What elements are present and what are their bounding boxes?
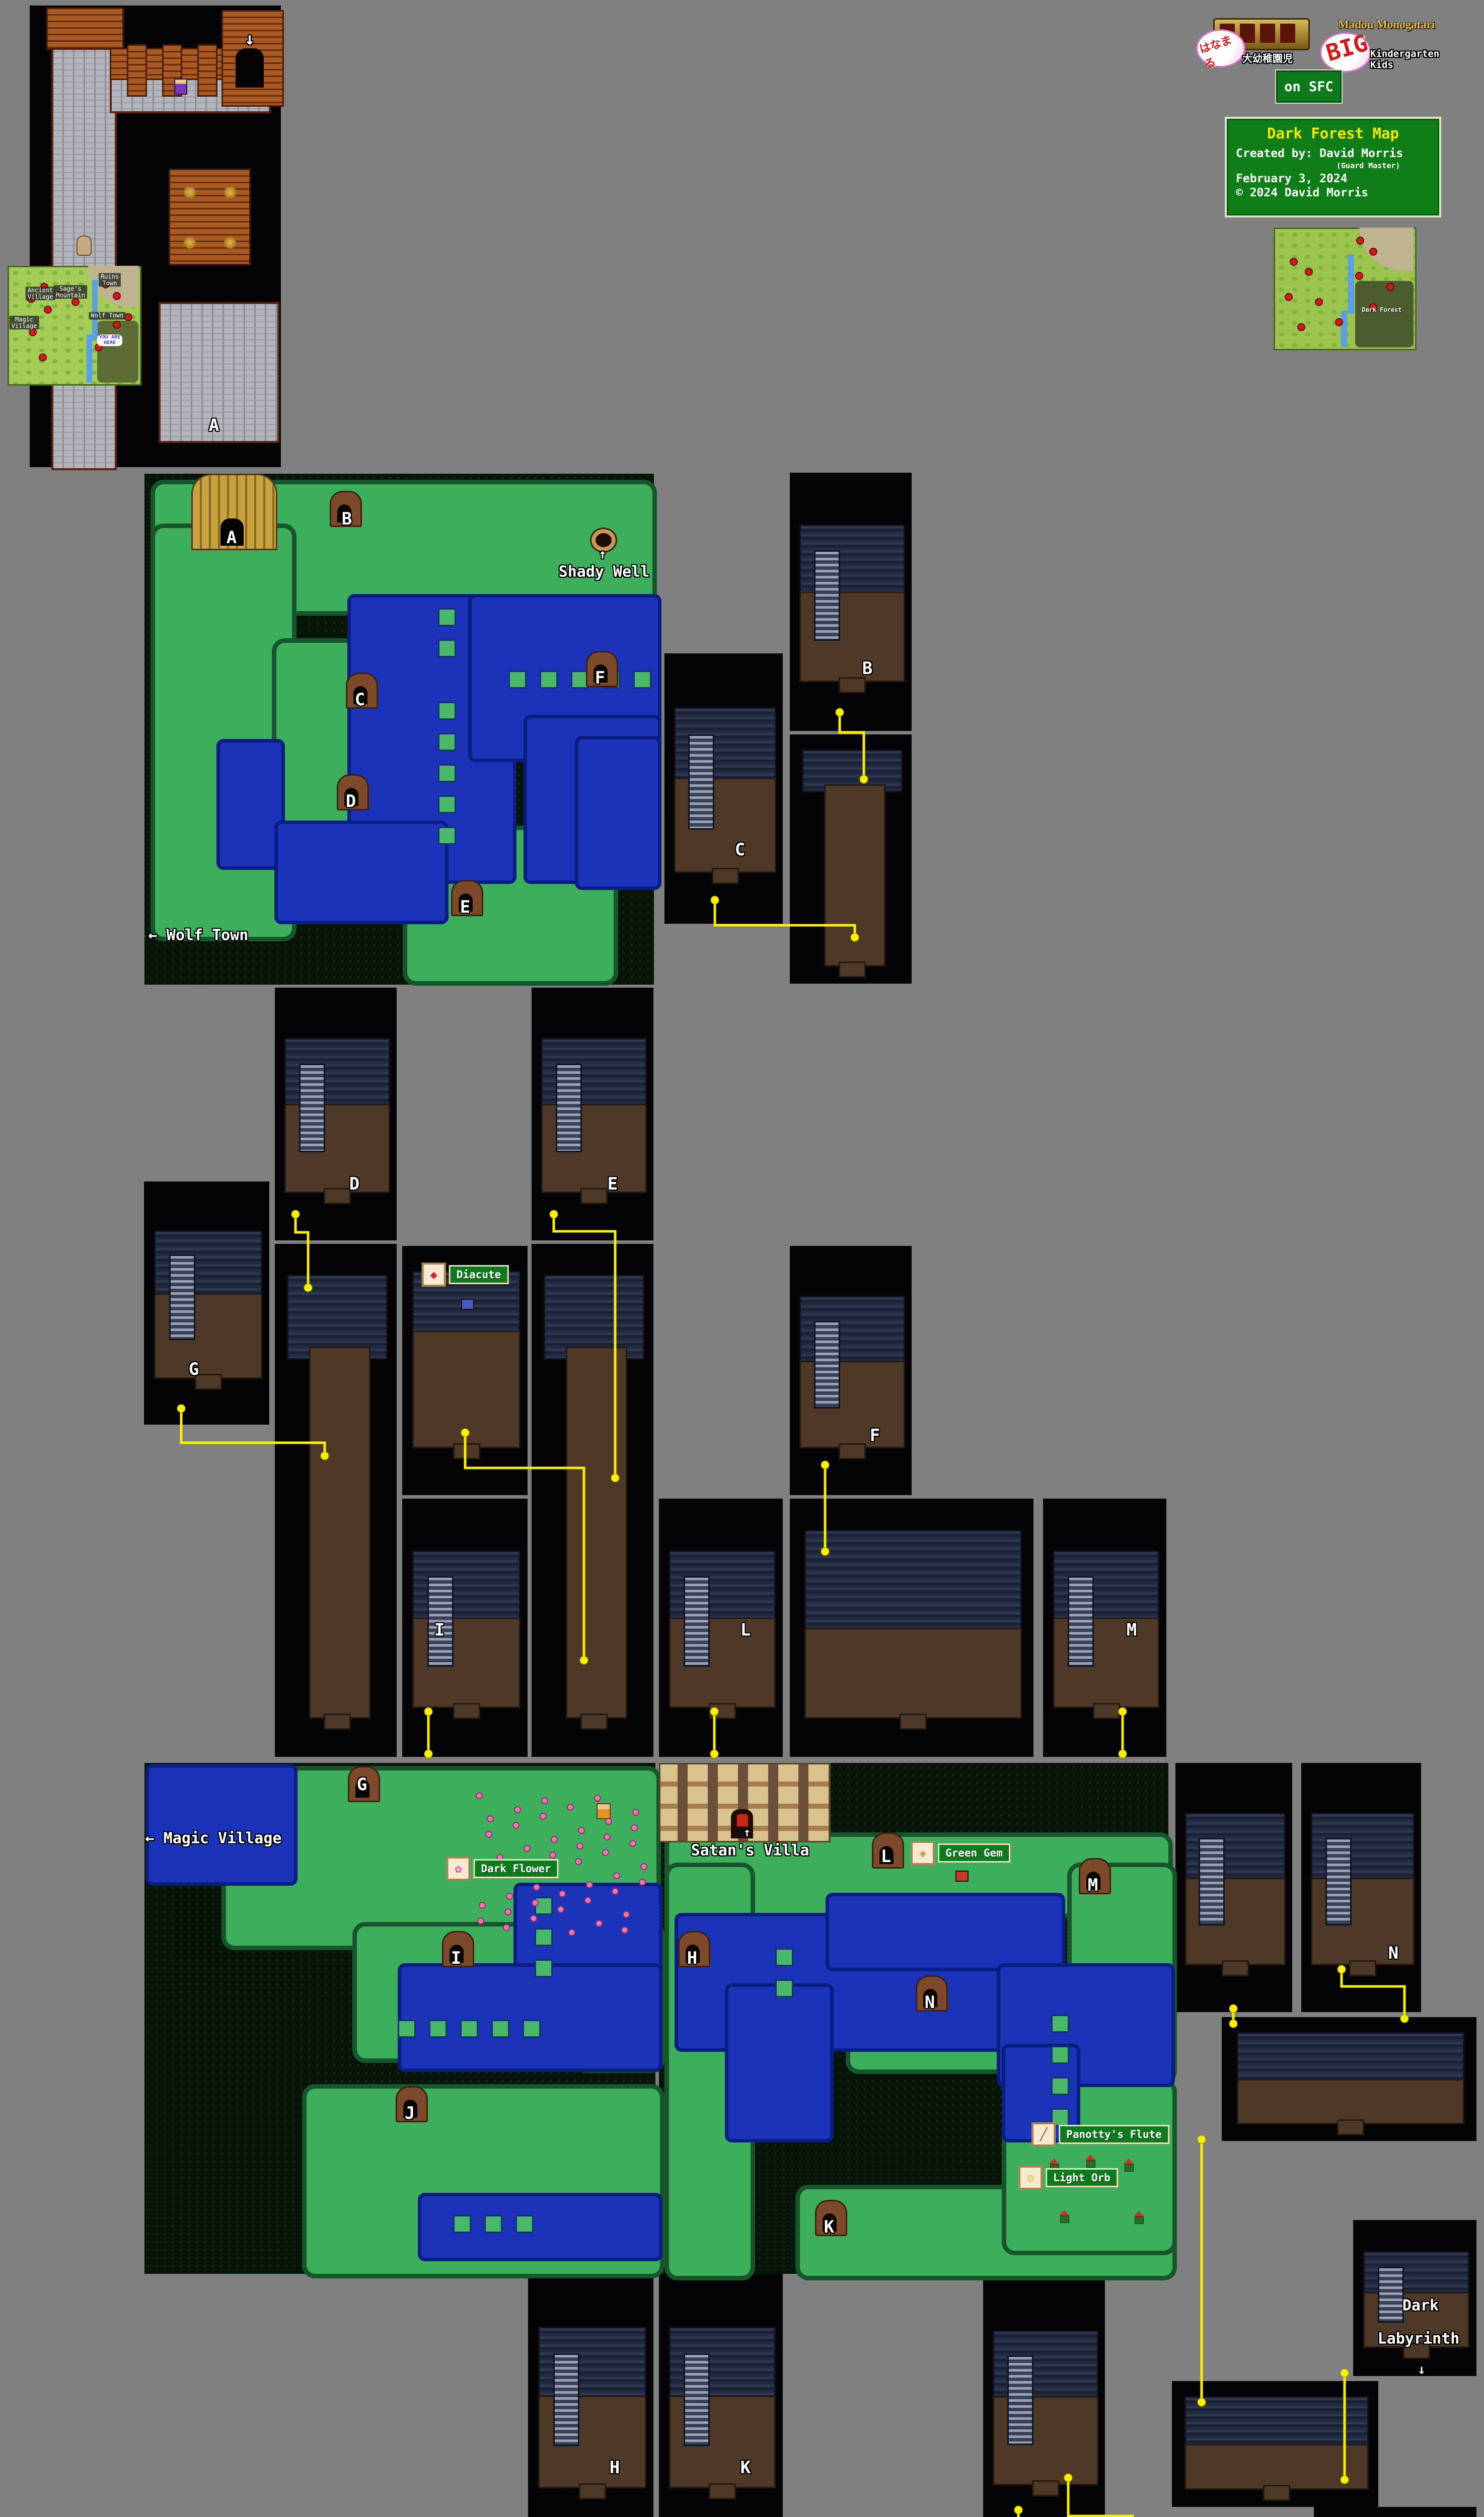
map-letter-D: D	[349, 1175, 359, 1193]
diacute-room-exit-notch	[453, 1443, 480, 1459]
map-label: ↑	[599, 548, 607, 562]
item-badge-panotty-s-flute: ╱Panotty's Flute	[1031, 2122, 1169, 2146]
map-letter-B: B	[862, 660, 872, 677]
cave-h-interior-stairs-icon	[553, 2353, 579, 2447]
dark-flower-sprite	[639, 1879, 646, 1886]
magic-village-forest-stepping-stone	[460, 2020, 478, 2038]
dark-flower-sprite	[613, 1872, 620, 1879]
kid-flag-sprite	[597, 1803, 611, 1819]
map-letter-A: A	[209, 417, 219, 434]
magic-village-forest-stepping-stone	[453, 2215, 471, 2233]
map-title: Dark Forest Map	[1227, 125, 1439, 142]
diacute-room-floor	[412, 1330, 521, 1448]
world-map-thumb-poi-dot	[71, 298, 80, 306]
cave-l-interior-exit-notch	[709, 1703, 736, 1719]
dark-flower-sprite	[479, 1902, 486, 1909]
map-letter-M: M	[1127, 1621, 1137, 1639]
world-map-thumb-dark-forest-poi-dot	[1305, 268, 1313, 276]
world-map-thumb-dark-forest-poi-dot	[1315, 298, 1323, 306]
dark-flower-sprite	[640, 1863, 647, 1870]
dark-flower-sprite	[568, 1929, 575, 1936]
wolf-forest-stepping-stone	[438, 764, 456, 782]
right-stairs-room-stairs-icon	[1199, 1838, 1225, 1926]
cave-d-connector-floor	[309, 1347, 370, 1719]
cave-f-interior-stairs-icon	[814, 1321, 840, 1409]
castle-brick-wall	[197, 44, 217, 97]
dark-flower-sprite	[629, 1840, 636, 1847]
gnome-sprite	[1124, 2159, 1134, 2172]
map-letter-N: N	[925, 1994, 935, 2011]
dark-forest-map-canvas: はなまる 大幼稚園児 Madou Monogatari BIG Kinderga…	[0, 0, 1484, 2517]
map-letter-K: K	[824, 2218, 834, 2236]
right-connector-wall	[1237, 2032, 1464, 2085]
dark-flower-sprite	[586, 1881, 593, 1888]
dark-flower-sprite	[477, 1917, 484, 1924]
right-connector-exit-notch	[1337, 2119, 1364, 2135]
dark-flower-sprite	[632, 1809, 639, 1816]
wolf-forest-stepping-stone	[438, 827, 456, 845]
map-date: February 3, 2024	[1236, 172, 1439, 185]
wolf-forest-water	[575, 736, 661, 890]
castle-brick-wall	[169, 169, 251, 265]
cave-h-interior-exit-notch	[579, 2483, 606, 2499]
gnome-sprite	[1134, 2211, 1144, 2224]
world-map-thumb-dark-forest-river	[1341, 311, 1347, 347]
map-label: Shady Well	[559, 564, 650, 580]
castle-brick-wall	[127, 44, 147, 97]
item-badge-label: Diacute	[449, 1265, 509, 1284]
magic-village-forest-stepping-stone	[523, 2020, 541, 2038]
map-letter-J: J	[405, 2105, 415, 2122]
world-map-thumb-dark-forest-dark-forest	[1355, 281, 1414, 347]
cave-m-interior-exit-notch	[1093, 1703, 1120, 1719]
item-badge-green-gem: ◈Green Gem	[911, 1841, 1010, 1865]
dark-flower-sprite	[602, 1849, 609, 1856]
magic-village-forest-water	[398, 1963, 662, 2072]
world-map-thumb-dark-forest-river	[1348, 254, 1354, 314]
map-letter-N: N	[1388, 1945, 1398, 1962]
map-info-box: Dark Forest Map Created by: David Morris…	[1225, 117, 1441, 217]
dark-flower-sprite	[584, 1897, 591, 1904]
world-map-thumb-river	[92, 280, 98, 339]
dark-flower-sprite	[551, 1836, 558, 1843]
castle-brick-wall	[46, 8, 124, 50]
dark-flower-sprite	[512, 1822, 520, 1829]
map-letter-L: L	[740, 1621, 751, 1639]
dark-flower-sprite	[596, 1920, 603, 1927]
map-letter-F: F	[870, 1427, 880, 1444]
castle-stone-floor	[51, 44, 117, 470]
item-badge-diacute: ◆Diacute	[422, 1263, 509, 1287]
magic-village-forest-stepping-stone	[429, 2020, 447, 2038]
dark-flower-sprite	[485, 1831, 492, 1838]
world-map-thumb-poi-dot	[39, 353, 47, 361]
map-letter-D: D	[346, 793, 356, 810]
map-label: ← Wolf Town	[149, 927, 249, 944]
wolf-forest-stepping-stone	[438, 702, 456, 720]
world-map-thumb-dark-forest-poi-dot	[1369, 248, 1377, 256]
dark-flower-sprite	[576, 1842, 583, 1849]
z-connector-upper-wall	[1184, 2396, 1369, 2450]
world-map-thumb-place-label: Magic Village	[10, 316, 39, 329]
world-map-thumb-dark-forest-poi-dot	[1290, 258, 1298, 266]
world-map-thumb-dark-forest-dark-forest-label: Dark Forest	[1360, 307, 1403, 314]
satans-villa-forest-stepping-stone	[775, 1979, 793, 1997]
world-map-thumb-poi-dot	[113, 292, 121, 300]
dark-flower-sprite	[578, 1827, 585, 1834]
map-letter-H: H	[610, 2459, 620, 2476]
dark-flower-sprite	[604, 1833, 611, 1840]
gnome-sprite	[1059, 2210, 1069, 2223]
magic-village-forest-stepping-stone	[515, 2215, 534, 2233]
item-badge-label: Dark Flower	[473, 1859, 558, 1878]
cave-d-interior-exit-notch	[324, 1188, 351, 1204]
world-map-thumb-dark-forest-poi-dot	[1386, 283, 1394, 291]
lion-medallion-icon	[224, 237, 236, 249]
map-letter-F: F	[595, 670, 605, 687]
satans-villa-forest-water	[826, 1893, 1065, 1971]
dark-flower-sprite	[530, 1915, 537, 1922]
cave-b-interior-exit-notch	[839, 677, 866, 693]
cave-k-interior-stairs-icon	[684, 2353, 710, 2447]
dark-flower-sprite	[533, 1884, 540, 1891]
cave-n-interior-exit-notch	[1349, 1960, 1376, 1976]
map-label: ↓	[1418, 2363, 1426, 2378]
map-letter-A: A	[227, 529, 237, 546]
world-map-thumb-poi-dot	[113, 321, 121, 329]
cave-d-interior-stairs-icon	[299, 1064, 325, 1153]
screenshot-root: { "canvas": {"w": 2948, "h": 5752, "bg":…	[0, 0, 1484, 2517]
world-map-thumb-place-label: Wolf Town	[89, 312, 125, 320]
flute-icon: ╱	[1031, 2122, 1056, 2146]
mid-stairs-room-stairs-icon	[1007, 2355, 1033, 2445]
world-map-thumb-dark-forest	[97, 321, 138, 383]
map-copyright: © 2024 David Morris	[1236, 186, 1439, 199]
gem-icon: ◆	[422, 1263, 446, 1287]
wide-hall-exit-notch	[900, 1714, 927, 1730]
magic-village-forest-stepping-stone	[535, 1959, 553, 1977]
map-label: Labyrinth	[1378, 2331, 1460, 2347]
map-label: ↑	[744, 1826, 751, 1839]
z-connector-lower-box	[1314, 2507, 1476, 2517]
wolf-forest-stepping-stone	[633, 671, 651, 689]
map-letter-H: H	[687, 1950, 697, 1967]
item-badge-label: Light Orb	[1046, 2168, 1118, 2187]
world-map-thumb-dark-forest-poi-dot	[1335, 318, 1343, 326]
cave-e-interior-exit-notch	[580, 1188, 608, 1204]
cave-b-interior-stairs-icon	[814, 550, 840, 641]
wide-hall-floor	[804, 1628, 1022, 1719]
wide-hall-wall	[804, 1530, 1022, 1636]
treasure-chest-icon	[955, 1871, 969, 1882]
map-letter-G: G	[357, 1776, 367, 1793]
you-are-here-bubble: YOU ARE HERE	[97, 335, 122, 346]
flower-icon: ✿	[446, 1857, 470, 1881]
dark-flower-sprite	[594, 1795, 601, 1802]
dark-flower-sprite	[557, 1906, 564, 1913]
dark-flower-sprite	[487, 1815, 494, 1822]
dark-flower-sprite	[514, 1806, 521, 1813]
cave-e-connector-exit-notch	[580, 1714, 608, 1730]
cave-l-interior-stairs-icon	[684, 1576, 710, 1667]
madou-monogatari-jp-logo: はなまる 大幼稚園児	[1199, 15, 1311, 69]
item-badge-label: Green Gem	[938, 1843, 1010, 1863]
satans-villa-forest-stepping-stone	[1051, 2046, 1069, 2064]
world-map-thumb-river	[87, 334, 92, 383]
lion-medallion-icon	[184, 237, 196, 249]
cave-b-lower-exit-notch	[839, 961, 866, 978]
dark-flower-sprite	[541, 1797, 548, 1804]
dark-flower-sprite	[567, 1804, 574, 1811]
cave-b-lower-floor	[824, 784, 885, 967]
wolf-forest-stepping-stone	[438, 795, 456, 813]
dark-flower-sprite	[621, 1927, 628, 1934]
lion-medallion-icon	[184, 186, 196, 198]
world-map-thumb-place-label: Ancient Village	[26, 286, 55, 300]
dark-flower-sprite	[575, 1858, 582, 1865]
map-letter-C: C	[355, 691, 365, 708]
satans-villa-forest-stepping-stone	[1051, 2015, 1069, 2033]
map-created-by: Created by: David Morris	[1236, 147, 1439, 160]
magic-village-forest-stepping-stone	[535, 1897, 553, 1915]
dark-flower-sprite	[504, 1908, 511, 1915]
item-badge-dark-flower: ✿Dark Flower	[446, 1857, 558, 1881]
cave-e-connector-floor	[566, 1347, 627, 1719]
cave-g-interior-stairs-icon	[169, 1254, 195, 1340]
z-connector-upper-floor	[1184, 2444, 1369, 2490]
map-letter-C: C	[735, 841, 745, 858]
en-logo-subtitle: Kindergarten Kids	[1370, 48, 1439, 70]
map-label: Dark	[1402, 2298, 1439, 2314]
world-map-thumb-dark-forest-poi-dot	[1355, 272, 1363, 280]
map-creator-role: (Guard Master)	[1337, 161, 1439, 170]
cave-e-interior-stairs-icon	[556, 1064, 582, 1153]
map-letter-E: E	[460, 899, 470, 916]
item-badge-light-orb: ◍Light Orb	[1018, 2166, 1118, 2190]
treasure-chest-icon	[461, 1299, 474, 1310]
dog-sprite	[77, 236, 92, 256]
dark-flower-sprite	[503, 1924, 510, 1931]
magic-village-forest-stepping-stone	[535, 1928, 553, 1946]
cave-c-interior-stairs-icon	[688, 734, 714, 830]
cursor-arrow-down-icon: ↓	[245, 30, 255, 48]
dark-flower-sprite	[631, 1824, 638, 1831]
magic-village-forest-stepping-stone	[398, 2020, 416, 2038]
map-letter-L: L	[881, 1848, 891, 1865]
dark-flower-sprite	[524, 1845, 531, 1852]
magic-village-forest-stepping-stone	[484, 2215, 502, 2233]
coin-icon: ◈	[911, 1841, 935, 1865]
mid-stairs-room-exit-notch	[1032, 2480, 1059, 2496]
magic-village-forest-water	[145, 1764, 298, 1886]
world-map-thumb-poi-dot	[44, 306, 52, 314]
dark-flower-sprite	[476, 1792, 483, 1799]
cave-d-connector-exit-notch	[324, 1714, 351, 1730]
satans-villa-forest-stepping-stone	[775, 1948, 793, 1966]
item-badge-label: Panotty's Flute	[1059, 2125, 1169, 2144]
wolf-forest-stepping-stone	[540, 671, 558, 689]
cave-c-interior-exit-notch	[712, 868, 739, 884]
jp-logo-subtitle: 大幼稚園児	[1242, 50, 1293, 65]
orb-icon: ◍	[1018, 2166, 1043, 2190]
right-stairs-room-exit-notch	[1222, 1960, 1249, 1976]
map-letter-K: K	[740, 2459, 751, 2476]
wolf-forest-stepping-stone	[438, 639, 456, 657]
dark-flower-sprite	[623, 1911, 630, 1918]
world-map-thumb-place-label: Ruins Town	[99, 273, 121, 286]
dark-flower-sprite	[612, 1888, 619, 1895]
dark-flower-sprite	[532, 1899, 539, 1906]
map-letter-I: I	[451, 1950, 461, 1967]
map-letter-E: E	[608, 1175, 618, 1193]
dark-flower-sprite	[506, 1893, 513, 1900]
dark-labyrinth-stairs-icon	[1378, 2267, 1404, 2323]
world-map-thumb-place-label: Sage's Mountain	[54, 285, 87, 299]
wolf-forest-stepping-stone	[508, 671, 527, 689]
z-connector-upper-exit-notch	[1263, 2485, 1290, 2501]
world-map-thumb-dark-forest-poi-dot	[1285, 293, 1293, 301]
en-logo-title: Madou Monogatari	[1338, 18, 1439, 31]
world-map-thumb-dark-forest-poi-dot	[1297, 323, 1305, 331]
map-letter-M: M	[1088, 1877, 1098, 1894]
cave-n-interior-stairs-icon	[1325, 1838, 1352, 1926]
map-label: ← Magic Village	[145, 1830, 282, 1847]
satans-villa-forest-stepping-stone	[1051, 2077, 1069, 2095]
cave-k-interior-exit-notch	[709, 2483, 736, 2499]
map-letter-B: B	[342, 510, 352, 528]
wolf-forest-stepping-stone	[438, 608, 456, 626]
map-letter-I: I	[434, 1621, 444, 1639]
madou-monogatari-en-logo: Madou Monogatari BIG Kindergarten Kids	[1324, 17, 1438, 71]
wolf-forest-stepping-stone	[438, 733, 456, 751]
map-letter-G: G	[189, 1361, 199, 1378]
cave-f-interior-exit-notch	[839, 1443, 866, 1459]
npc-purple-sprite	[174, 79, 187, 95]
cave-m-interior-stairs-icon	[1068, 1576, 1094, 1667]
cave-i-interior-exit-notch	[453, 1703, 480, 1719]
right-connector-floor	[1237, 2079, 1464, 2124]
magic-village-forest-stepping-stone	[491, 2020, 509, 2038]
dark-flower-sprite	[605, 1818, 612, 1825]
dark-flower-sprite	[559, 1890, 566, 1897]
lion-medallion-icon	[224, 186, 236, 198]
wolf-forest-water	[274, 821, 449, 924]
world-map-thumb-dark-forest-poi-dot	[1356, 237, 1364, 245]
satans-villa-forest-water	[725, 1983, 834, 2142]
dark-flower-sprite	[540, 1813, 547, 1820]
castle-doorway	[236, 48, 264, 88]
platform-badge: on SFC	[1276, 70, 1342, 103]
map-label: Satan's Villa	[691, 1842, 809, 1859]
